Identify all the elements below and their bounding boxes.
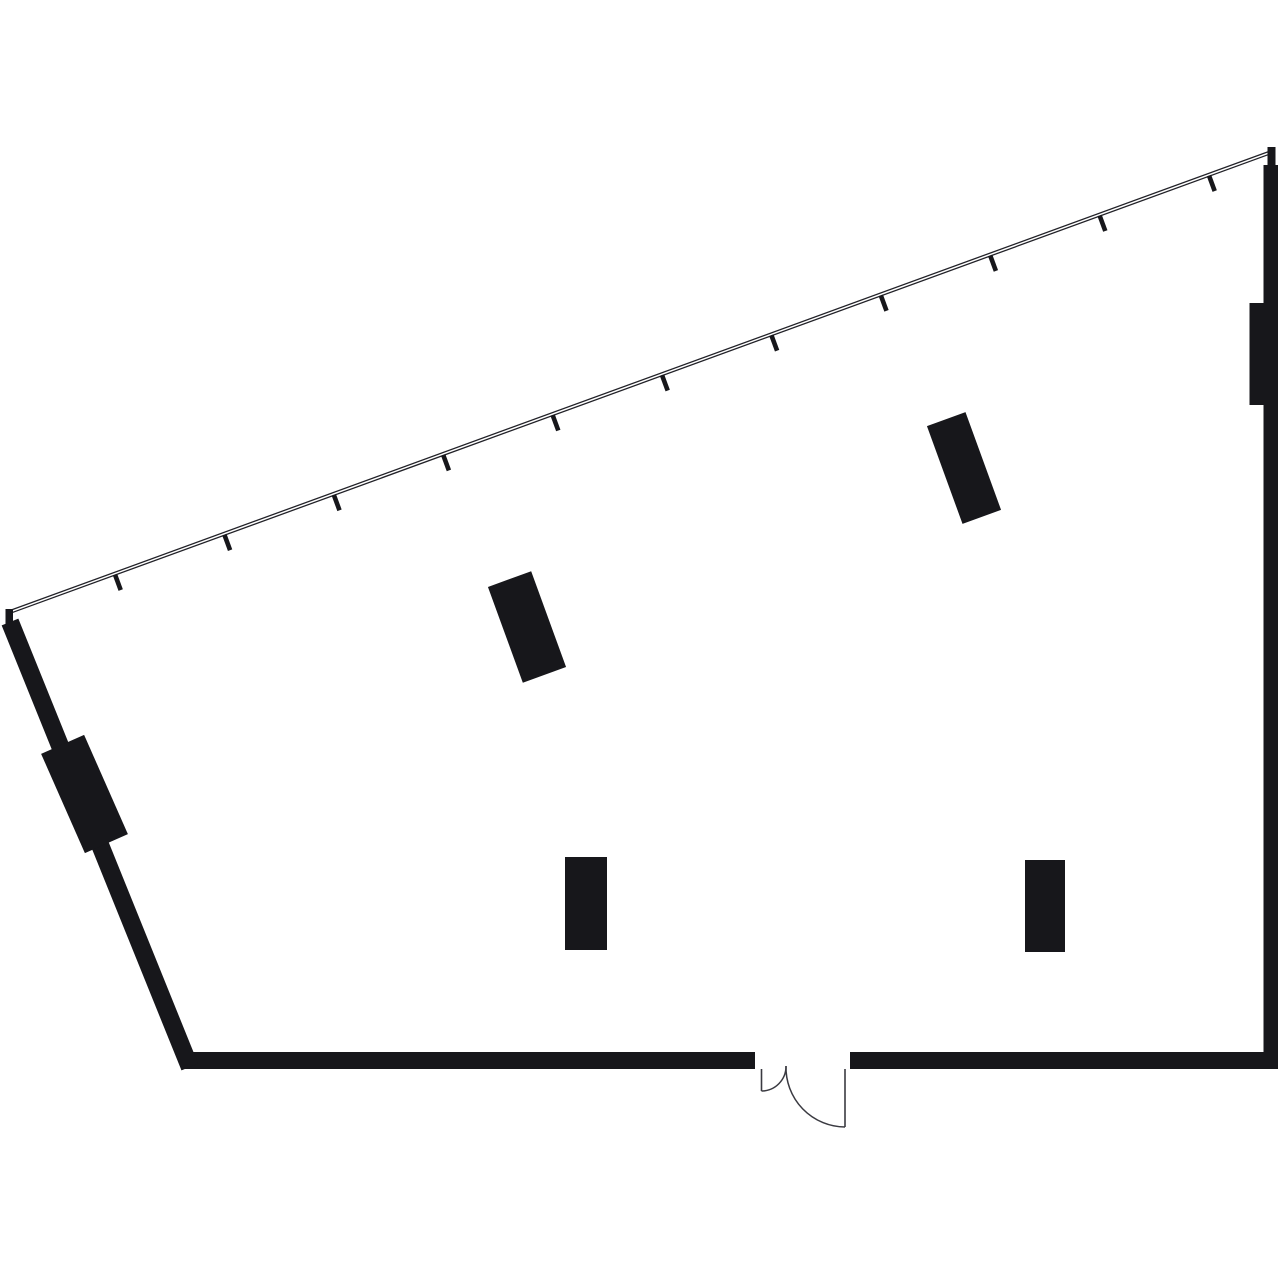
mullion-tick xyxy=(115,575,121,591)
mullion-tick xyxy=(334,495,340,511)
mullion-tick xyxy=(1100,216,1106,232)
mullion-tick xyxy=(1209,176,1215,192)
right-wall-pilaster xyxy=(1250,303,1265,405)
mullion-tick xyxy=(662,375,668,391)
interior-block-lower-right xyxy=(1025,860,1065,952)
mullion-tick xyxy=(553,415,559,431)
interior-block-upper-right xyxy=(927,412,1001,524)
floor-plan xyxy=(0,0,1280,1278)
window-wall-right-cap xyxy=(1268,147,1276,167)
window-wall-line-inner xyxy=(11,154,1270,613)
floor-plan-drawing xyxy=(0,0,1280,1278)
interior-block-lower-left xyxy=(565,857,607,950)
mullion-tick xyxy=(990,255,996,271)
door-left-swing-arc xyxy=(762,1066,787,1091)
mullion-tick xyxy=(881,295,887,311)
bottom-wall-right xyxy=(850,1052,1264,1069)
left-wall-pilaster xyxy=(41,735,128,853)
mullion-tick xyxy=(443,455,449,471)
door-right-swing-arc xyxy=(786,1066,845,1127)
mullion-tick xyxy=(771,335,777,351)
mullion-tick xyxy=(224,535,230,551)
window-wall-line-outer xyxy=(10,152,1269,611)
right-wall xyxy=(1264,165,1279,1069)
interior-block-upper-left xyxy=(488,571,566,683)
bottom-wall-left xyxy=(184,1052,755,1069)
